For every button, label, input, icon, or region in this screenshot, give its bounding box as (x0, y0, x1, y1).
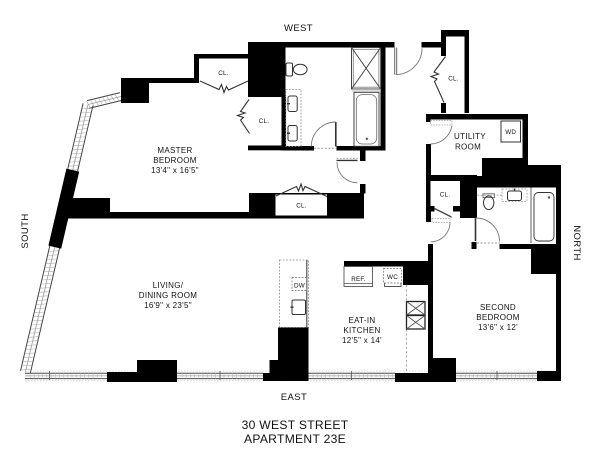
svg-text:ROOM: ROOM (455, 143, 481, 152)
svg-text:13'6" x 12': 13'6" x 12' (478, 323, 518, 332)
svg-text:BEDROOM: BEDROOM (476, 313, 519, 322)
svg-text:EAT-IN: EAT-IN (349, 316, 376, 325)
svg-text:EAST: EAST (281, 392, 307, 403)
svg-text:SOUTH: SOUTH (20, 213, 31, 248)
svg-text:CL.: CL. (296, 203, 306, 210)
svg-text:DINING ROOM: DINING ROOM (139, 291, 197, 300)
svg-text:30 WEST STREET: 30 WEST STREET (242, 418, 349, 432)
svg-text:WD: WD (505, 129, 516, 136)
svg-text:UTILITY: UTILITY (454, 132, 486, 141)
svg-text:13'4" x 16'5": 13'4" x 16'5" (151, 166, 199, 175)
svg-text:CL.: CL. (448, 76, 458, 83)
svg-text:CL.: CL. (259, 118, 269, 125)
svg-text:12'5" x 14': 12'5" x 14' (342, 336, 382, 345)
svg-text:BEDROOM: BEDROOM (153, 156, 196, 165)
svg-text:NORTH: NORTH (571, 225, 582, 261)
svg-text:DW: DW (294, 283, 305, 290)
svg-text:16'9" x 23'5": 16'9" x 23'5" (144, 301, 192, 310)
svg-text:REF.: REF. (351, 276, 365, 283)
svg-text:LIVING/: LIVING/ (153, 281, 184, 290)
svg-text:WC: WC (387, 274, 398, 281)
svg-text:CL.: CL. (440, 192, 450, 199)
svg-text:MASTER: MASTER (157, 146, 192, 155)
svg-text:WEST: WEST (284, 23, 313, 34)
svg-text:KITCHEN: KITCHEN (343, 326, 380, 335)
svg-text:SECOND: SECOND (480, 303, 516, 312)
svg-text:APARTMENT 23E: APARTMENT 23E (244, 432, 346, 446)
svg-text:CL.: CL. (218, 70, 228, 77)
